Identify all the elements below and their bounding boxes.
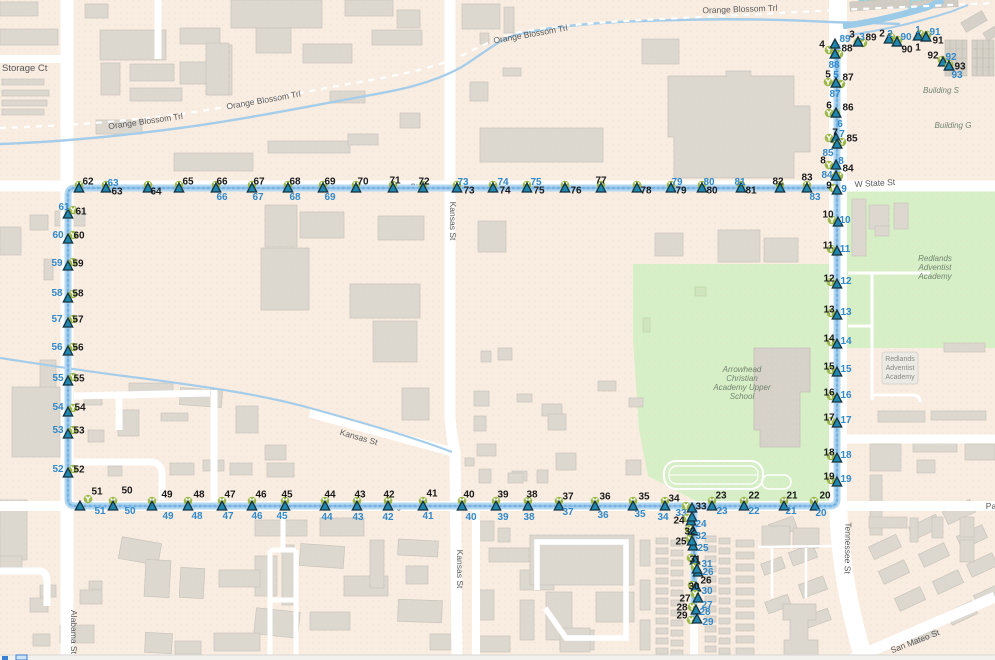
- svg-text:Kansas St: Kansas St: [448, 202, 458, 241]
- svg-text:45: 45: [276, 511, 288, 522]
- svg-text:85: 85: [822, 148, 834, 159]
- svg-text:56: 56: [72, 343, 84, 354]
- svg-text:9: 9: [826, 181, 832, 192]
- svg-text:10: 10: [839, 215, 851, 226]
- svg-text:11: 11: [840, 244, 851, 255]
- svg-text:9: 9: [841, 184, 847, 195]
- svg-text:55: 55: [52, 373, 64, 384]
- svg-text:81: 81: [745, 186, 757, 197]
- svg-text:82: 82: [772, 177, 784, 188]
- svg-text:Redlands: Redlands: [885, 356, 915, 363]
- svg-text:88: 88: [828, 60, 840, 71]
- svg-text:33: 33: [695, 502, 707, 513]
- svg-text:4: 4: [819, 40, 825, 51]
- svg-text:84: 84: [821, 170, 833, 181]
- svg-text:41: 41: [422, 511, 434, 522]
- svg-text:89: 89: [865, 33, 877, 44]
- svg-text:29: 29: [702, 617, 714, 628]
- svg-text:16: 16: [840, 390, 852, 401]
- svg-text:24: 24: [673, 516, 685, 527]
- svg-text:47: 47: [222, 511, 234, 522]
- svg-text:58: 58: [51, 288, 63, 299]
- svg-text:46: 46: [251, 511, 263, 522]
- svg-text:54: 54: [74, 403, 86, 414]
- svg-text:90: 90: [901, 45, 913, 56]
- svg-text:24: 24: [695, 519, 707, 530]
- svg-text:15: 15: [823, 362, 835, 373]
- svg-text:53: 53: [73, 426, 85, 437]
- svg-text:41: 41: [426, 489, 438, 500]
- svg-text:62: 62: [82, 177, 94, 188]
- svg-text:76: 76: [570, 186, 582, 197]
- svg-text:30: 30: [701, 586, 713, 597]
- svg-text:17: 17: [823, 413, 835, 424]
- svg-text:47: 47: [224, 490, 236, 501]
- svg-text:6: 6: [826, 101, 832, 112]
- svg-text:12: 12: [840, 276, 852, 287]
- svg-text:25: 25: [697, 543, 709, 554]
- svg-text:51: 51: [91, 487, 103, 498]
- svg-text:35: 35: [638, 492, 650, 503]
- svg-text:23: 23: [716, 506, 728, 517]
- svg-text:71: 71: [389, 176, 401, 187]
- svg-text:34: 34: [668, 494, 680, 505]
- svg-text:36: 36: [599, 492, 611, 503]
- svg-text:29: 29: [676, 611, 688, 622]
- svg-text:Academy: Academy: [885, 374, 915, 381]
- svg-text:60: 60: [73, 231, 85, 242]
- svg-text:18: 18: [840, 450, 852, 461]
- svg-text:22: 22: [748, 506, 760, 517]
- svg-text:53: 53: [52, 425, 64, 436]
- svg-text:40: 40: [465, 512, 477, 523]
- svg-text:38: 38: [523, 512, 535, 523]
- svg-text:15: 15: [840, 364, 852, 375]
- svg-text:50: 50: [121, 486, 133, 497]
- svg-text:69: 69: [324, 177, 336, 188]
- svg-text:36: 36: [597, 510, 609, 521]
- svg-text:School: School: [730, 392, 755, 401]
- svg-text:44: 44: [324, 490, 336, 501]
- svg-text:Building G: Building G: [935, 121, 972, 130]
- svg-text:34: 34: [657, 512, 669, 523]
- svg-text:13: 13: [823, 305, 835, 316]
- svg-text:42: 42: [382, 512, 394, 523]
- svg-text:22: 22: [748, 491, 760, 502]
- svg-text:21: 21: [785, 506, 797, 517]
- svg-text:17: 17: [840, 415, 852, 426]
- svg-text:65: 65: [182, 177, 194, 188]
- svg-text:23: 23: [715, 491, 727, 502]
- svg-text:51: 51: [94, 506, 106, 517]
- svg-text:11: 11: [823, 241, 834, 252]
- svg-text:46: 46: [255, 490, 267, 501]
- svg-text:58: 58: [72, 289, 84, 300]
- svg-text:Academy: Academy: [917, 272, 952, 281]
- svg-text:75: 75: [530, 177, 542, 188]
- svg-text:70: 70: [357, 177, 369, 188]
- svg-text:93: 93: [951, 70, 963, 81]
- svg-text:Building S: Building S: [923, 86, 960, 95]
- svg-text:83: 83: [801, 173, 813, 184]
- svg-text:64: 64: [150, 187, 162, 198]
- svg-text:Tennessee St: Tennessee St: [843, 522, 854, 574]
- svg-text:72: 72: [418, 177, 430, 188]
- svg-text:49: 49: [161, 490, 173, 501]
- svg-text:90: 90: [900, 32, 912, 43]
- svg-text:66: 66: [216, 177, 228, 188]
- svg-text:44: 44: [321, 512, 333, 523]
- svg-text:10: 10: [822, 210, 834, 221]
- svg-text:21: 21: [786, 491, 798, 502]
- svg-text:92: 92: [927, 51, 939, 62]
- svg-text:37: 37: [562, 507, 574, 518]
- svg-text:67: 67: [252, 192, 264, 203]
- svg-text:61: 61: [58, 202, 70, 213]
- svg-text:60: 60: [52, 230, 64, 241]
- svg-text:1: 1: [915, 25, 921, 36]
- svg-text:19: 19: [840, 474, 852, 485]
- svg-text:59: 59: [72, 259, 84, 270]
- svg-text:2: 2: [887, 29, 893, 40]
- svg-text:32: 32: [695, 531, 707, 542]
- svg-text:39: 39: [497, 512, 509, 523]
- svg-text:Pa: Pa: [986, 501, 995, 511]
- svg-text:20: 20: [815, 508, 827, 519]
- svg-text:84: 84: [842, 164, 854, 175]
- svg-text:87: 87: [829, 89, 841, 100]
- svg-text:6: 6: [837, 119, 843, 130]
- svg-text:66: 66: [216, 192, 228, 203]
- svg-text:16: 16: [823, 388, 835, 399]
- svg-text:83: 83: [809, 192, 821, 203]
- svg-text:74: 74: [497, 177, 509, 188]
- svg-text:14: 14: [840, 336, 852, 347]
- svg-text:52: 52: [52, 464, 64, 475]
- svg-text:Arrowhead: Arrowhead: [722, 365, 762, 374]
- svg-text:61: 61: [75, 207, 87, 218]
- svg-text:48: 48: [191, 511, 203, 522]
- svg-text:69: 69: [324, 192, 336, 203]
- svg-text:26: 26: [702, 567, 714, 578]
- svg-text:40: 40: [463, 490, 475, 501]
- svg-text:2: 2: [879, 29, 885, 40]
- svg-text:68: 68: [289, 177, 301, 188]
- svg-text:Storage Ct: Storage Ct: [2, 63, 48, 74]
- svg-text:67: 67: [253, 177, 265, 188]
- svg-text:63: 63: [107, 178, 119, 189]
- svg-text:Adventist: Adventist: [918, 263, 953, 272]
- svg-text:68: 68: [289, 192, 301, 203]
- svg-text:79: 79: [671, 177, 683, 188]
- svg-text:37: 37: [562, 492, 574, 503]
- svg-text:14: 14: [823, 334, 835, 345]
- svg-text:Academy Upper: Academy Upper: [712, 383, 771, 392]
- svg-text:56: 56: [51, 342, 63, 353]
- svg-text:25: 25: [675, 537, 687, 548]
- svg-text:13: 13: [840, 307, 852, 318]
- svg-text:45: 45: [281, 490, 293, 501]
- svg-text:91: 91: [929, 27, 941, 38]
- svg-text:57: 57: [51, 314, 63, 325]
- svg-text:55: 55: [73, 374, 85, 385]
- svg-text:Alabama St: Alabama St: [69, 610, 79, 655]
- svg-text:35: 35: [634, 509, 646, 520]
- svg-text:1: 1: [915, 43, 921, 54]
- svg-text:57: 57: [72, 315, 84, 326]
- svg-text:54: 54: [52, 402, 64, 413]
- svg-text:81: 81: [734, 177, 746, 188]
- svg-text:73: 73: [457, 177, 469, 188]
- svg-text:49: 49: [162, 511, 174, 522]
- svg-text:7: 7: [839, 129, 845, 140]
- svg-text:87: 87: [842, 73, 854, 84]
- svg-text:Kansas St: Kansas St: [455, 550, 465, 589]
- svg-text:19: 19: [823, 472, 835, 483]
- svg-text:39: 39: [497, 490, 509, 501]
- svg-text:78: 78: [640, 186, 652, 197]
- svg-text:59: 59: [51, 258, 63, 269]
- svg-text:12: 12: [823, 274, 835, 285]
- svg-text:5: 5: [825, 70, 831, 81]
- svg-text:80: 80: [703, 177, 715, 188]
- svg-text:77: 77: [595, 176, 607, 187]
- svg-text:20: 20: [819, 491, 831, 502]
- svg-text:18: 18: [823, 448, 835, 459]
- svg-text:43: 43: [354, 490, 366, 501]
- svg-text:88: 88: [841, 44, 853, 55]
- svg-text:52: 52: [73, 465, 85, 476]
- svg-text:42: 42: [383, 490, 395, 501]
- svg-text:38: 38: [526, 490, 538, 501]
- svg-text:43: 43: [352, 512, 364, 523]
- svg-text:50: 50: [124, 506, 136, 517]
- svg-text:Adventist: Adventist: [886, 365, 915, 372]
- svg-text:48: 48: [193, 490, 205, 501]
- svg-text:89: 89: [839, 34, 851, 45]
- svg-text:85: 85: [846, 134, 858, 145]
- svg-text:Redlands: Redlands: [918, 254, 952, 263]
- svg-text:86: 86: [842, 103, 854, 114]
- svg-text:Christian: Christian: [726, 374, 758, 383]
